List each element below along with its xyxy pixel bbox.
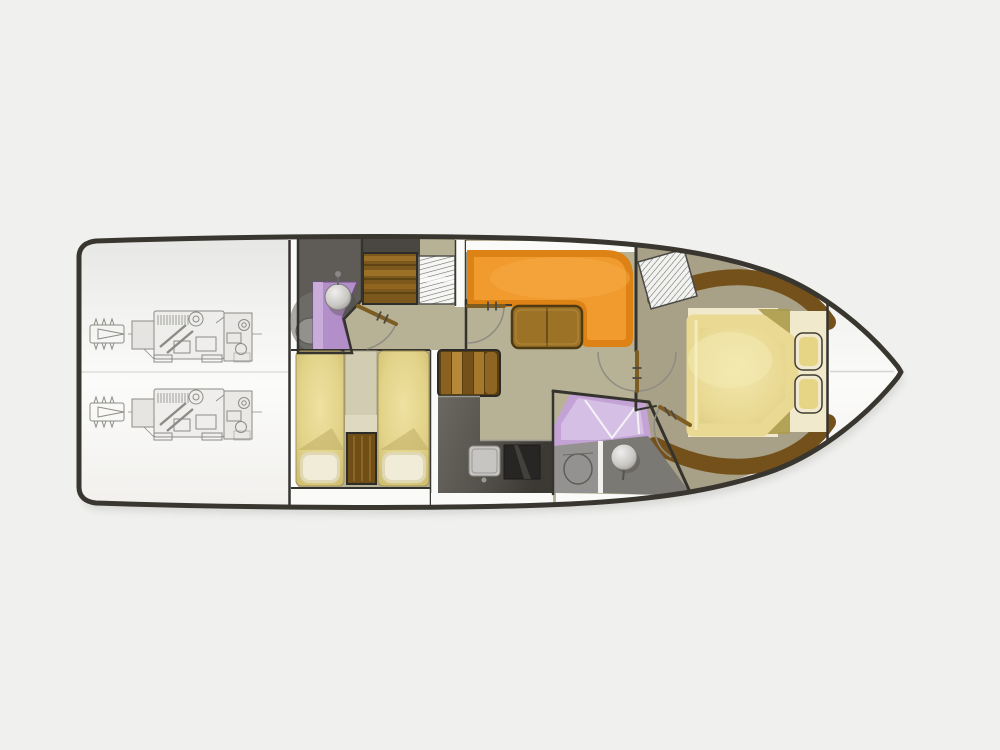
salon-table	[512, 306, 582, 348]
pillow-port	[303, 455, 337, 480]
sofa-highlight	[490, 257, 630, 299]
day-head-divider	[598, 441, 603, 493]
cabin-cabinet	[347, 433, 376, 484]
galley-sink-icon	[469, 446, 500, 476]
companionway-wood-panel	[363, 253, 417, 304]
bow-seat-upper	[795, 333, 822, 370]
sink-drain	[482, 478, 487, 483]
stairs-wall	[455, 239, 466, 307]
day-sink-pedestal	[623, 470, 624, 480]
day-sink-basin-icon	[611, 444, 637, 470]
faucet-knob	[335, 271, 341, 277]
boat-floorplan-figure	[0, 0, 1000, 750]
companionway-stairs-hatch	[419, 256, 455, 304]
mattress-highlight	[688, 332, 772, 388]
floorplan-canvas	[0, 0, 1000, 750]
salon-steps	[438, 350, 500, 396]
pillow-starboard	[385, 455, 423, 480]
bow-seat-lower	[795, 375, 822, 413]
nightstand-shelf	[345, 415, 377, 432]
room-twin-cabin	[291, 350, 432, 508]
vanity-highlight	[313, 282, 323, 351]
sink-basin-icon	[325, 284, 351, 310]
day-head-floor-left	[554, 441, 600, 493]
